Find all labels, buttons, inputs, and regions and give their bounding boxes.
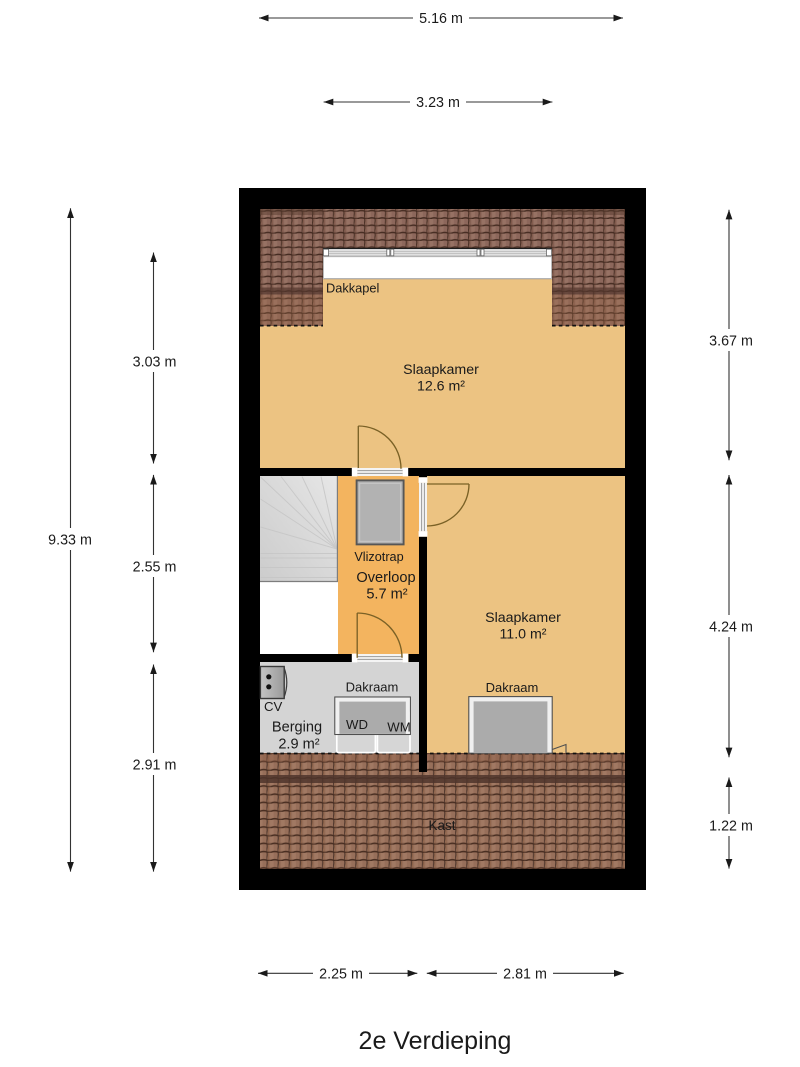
svg-text:5.16 m: 5.16 m (419, 11, 463, 27)
svg-text:2.25 m: 2.25 m (319, 966, 363, 982)
svg-text:3.67 m: 3.67 m (709, 334, 753, 350)
svg-text:WM: WM (387, 720, 410, 735)
svg-text:Slaapkamer: Slaapkamer (403, 362, 479, 378)
svg-text:11.0 m²: 11.0 m² (499, 627, 546, 643)
svg-text:Dakkapel: Dakkapel (326, 281, 379, 296)
svg-text:Slaapkamer: Slaapkamer (485, 610, 561, 626)
svg-text:Overloop: Overloop (356, 570, 415, 586)
svg-text:2e Verdieping: 2e Verdieping (359, 1027, 512, 1055)
svg-text:WD: WD (346, 717, 368, 732)
svg-text:2.9 m²: 2.9 m² (278, 737, 319, 753)
svg-text:Berging: Berging (272, 720, 322, 736)
svg-text:1.22 m: 1.22 m (709, 819, 753, 835)
svg-text:2.91 m: 2.91 m (133, 758, 177, 774)
svg-text:4.24 m: 4.24 m (709, 620, 753, 636)
svg-text:3.23 m: 3.23 m (416, 95, 460, 111)
svg-text:Dakraam: Dakraam (486, 680, 539, 695)
svg-text:Kast: Kast (428, 818, 455, 833)
svg-text:12.6 m²: 12.6 m² (417, 379, 465, 395)
svg-text:2.81 m: 2.81 m (503, 966, 547, 982)
svg-text:3.03 m: 3.03 m (133, 355, 177, 371)
svg-text:Vlizotrap: Vlizotrap (354, 550, 403, 564)
svg-text:5.7 m²: 5.7 m² (366, 587, 407, 603)
svg-text:Dakraam: Dakraam (346, 680, 399, 695)
svg-text:CV: CV (264, 699, 283, 714)
svg-text:2.55 m: 2.55 m (133, 560, 177, 576)
svg-text:9.33 m: 9.33 m (48, 533, 92, 549)
